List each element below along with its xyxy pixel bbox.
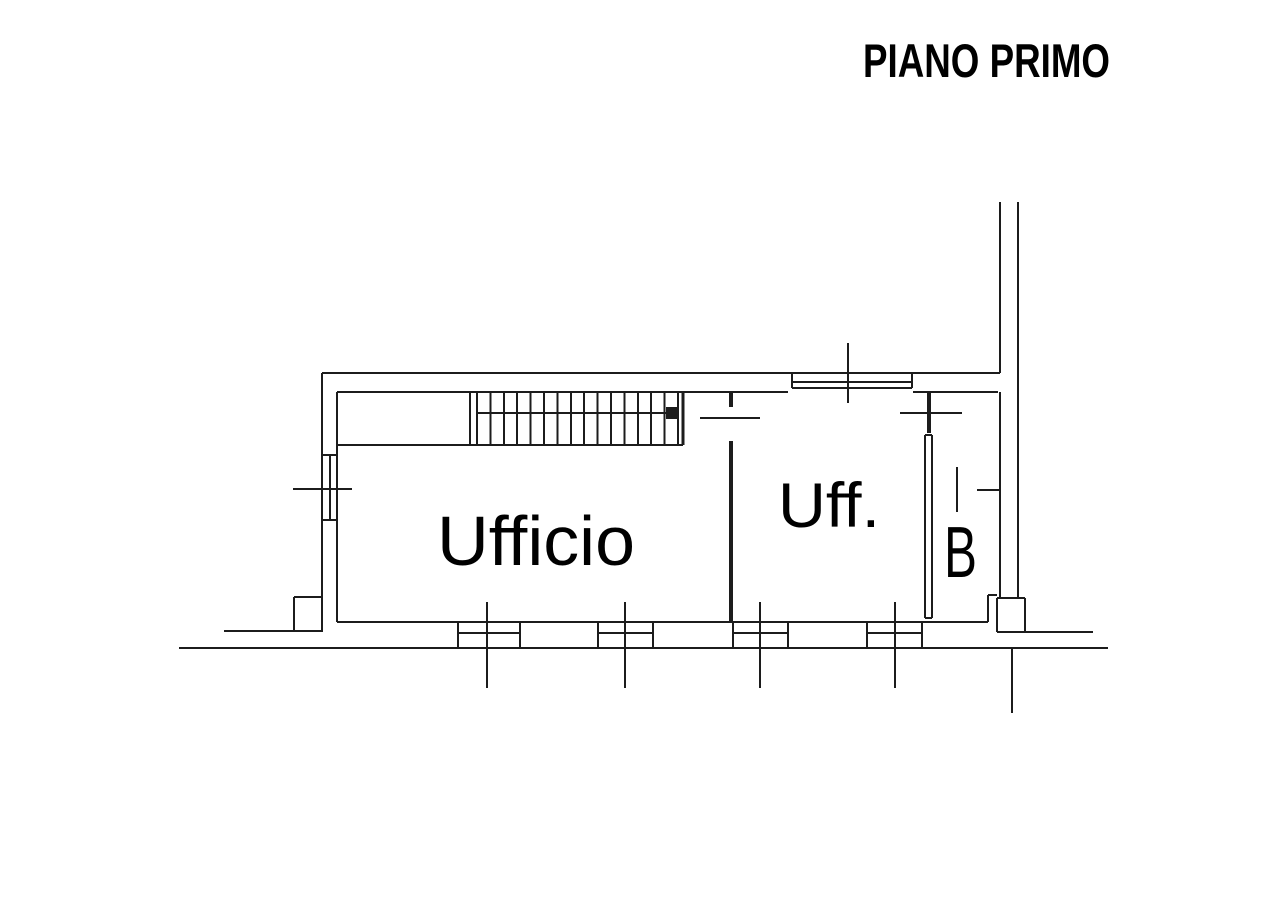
room-label-b: B: [944, 513, 977, 593]
floor-plan-page: PIANO PRIMO UfficioUff.B: [0, 0, 1280, 904]
floor-plan-canvas: PIANO PRIMO UfficioUff.B: [0, 0, 1280, 904]
room-labels-layer: UfficioUff.B: [437, 471, 977, 593]
stair-end-marker: [666, 407, 678, 419]
page-title: PIANO PRIMO: [863, 34, 1110, 87]
room-label-uff: Uff.: [778, 471, 880, 541]
walls-layer: [179, 202, 1108, 713]
room-label-ufficio: Ufficio: [437, 502, 635, 580]
bottom-windows-layer: [458, 602, 922, 688]
staircase: [477, 392, 678, 445]
